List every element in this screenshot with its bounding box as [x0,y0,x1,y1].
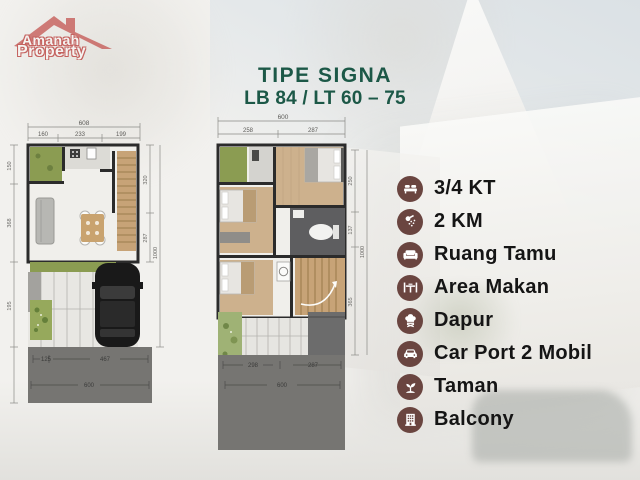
dim-label: 600 [278,114,289,121]
dining-table [81,214,104,242]
feature-label: Taman [434,375,498,398]
title-type: TIPE SIGNA [190,64,460,88]
feature-row: Car Port 2 Mobil [397,337,592,370]
feature-row: 2 KM [397,205,592,238]
floorplan-upper: 600 258 287 [205,112,390,457]
balcony-garden [220,147,247,182]
car-top-view [92,263,143,347]
dim-label: 287 [308,128,319,134]
feature-label: 3/4 KT [434,177,496,200]
dim-label: 368 [7,218,13,227]
page-title: TIPE SIGNA LB 84 / LT 60 – 75 [190,64,460,109]
dresser [220,232,250,243]
dim-label: 600 [277,383,288,389]
feature-label: Balcony [434,408,514,431]
shower-icon [397,209,423,235]
feature-label: Car Port 2 Mobil [434,342,592,365]
bed [220,190,256,222]
dim-label: 1000 [360,246,366,258]
floorplan-ground: 608 160 233 199 [0,118,210,410]
logo-text: Amanah Property [12,34,122,58]
dim-label: 467 [100,357,111,363]
poster-canvas: Amanah Property TIPE SIGNA LB 84 / LT 60… [0,0,640,480]
dim-label: 365 [348,297,354,306]
dim-label: 137 [348,225,354,234]
feature-label: Ruang Tamu [434,243,557,266]
kitchen-sink [87,148,96,159]
feature-label: Area Makan [434,276,549,299]
sofa [36,198,54,244]
dimension-lines-left [10,145,18,403]
feature-row: Taman [397,370,592,403]
feature-list: 3/4 KT 2 KM Ruang Tamu Area Makan Dapur [397,172,592,436]
bed [220,262,254,294]
feature-label: Dapur [434,309,493,332]
dim-label: 233 [75,132,86,138]
feature-row: Balcony [397,403,592,436]
dim-label: 320 [143,175,149,184]
title-spec: LB 84 / LT 60 – 75 [190,88,460,109]
kitchen-icon [397,308,423,334]
dim-label: 250 [348,176,354,185]
dimension-lines-right [146,145,164,347]
road [218,355,345,450]
bed-icon [397,176,423,202]
dim-label: 160 [38,132,49,138]
feature-row: Area Makan [397,271,592,304]
dim-label: 150 [7,161,13,170]
dim-label: 608 [79,120,90,127]
bed [305,148,344,182]
driveway [28,347,152,403]
dim-label: 600 [84,383,95,389]
feature-label: 2 KM [434,210,483,233]
building-icon [397,407,423,433]
stairs [295,258,345,315]
logo-amanah-property: Amanah Property [12,10,122,58]
dim-label: 298 [248,363,259,369]
garden-plant [30,300,52,340]
dining-icon [397,275,423,301]
plant-icon [397,374,423,400]
feature-row: Ruang Tamu [397,238,592,271]
feature-row: 3/4 KT [397,172,592,205]
sofa-icon [397,242,423,268]
dim-label: 287 [143,233,149,242]
stairs [117,151,136,251]
dim-label: 1000 [153,247,159,259]
dim-label: 125 [41,357,52,363]
dim-label: 258 [243,128,254,134]
dim-label: 287 [308,363,319,369]
feature-row: Dapur [397,304,592,337]
garden-patch [30,147,62,183]
dim-label: 195 [7,301,13,310]
car-icon [397,341,423,367]
dim-label: 199 [116,132,127,138]
